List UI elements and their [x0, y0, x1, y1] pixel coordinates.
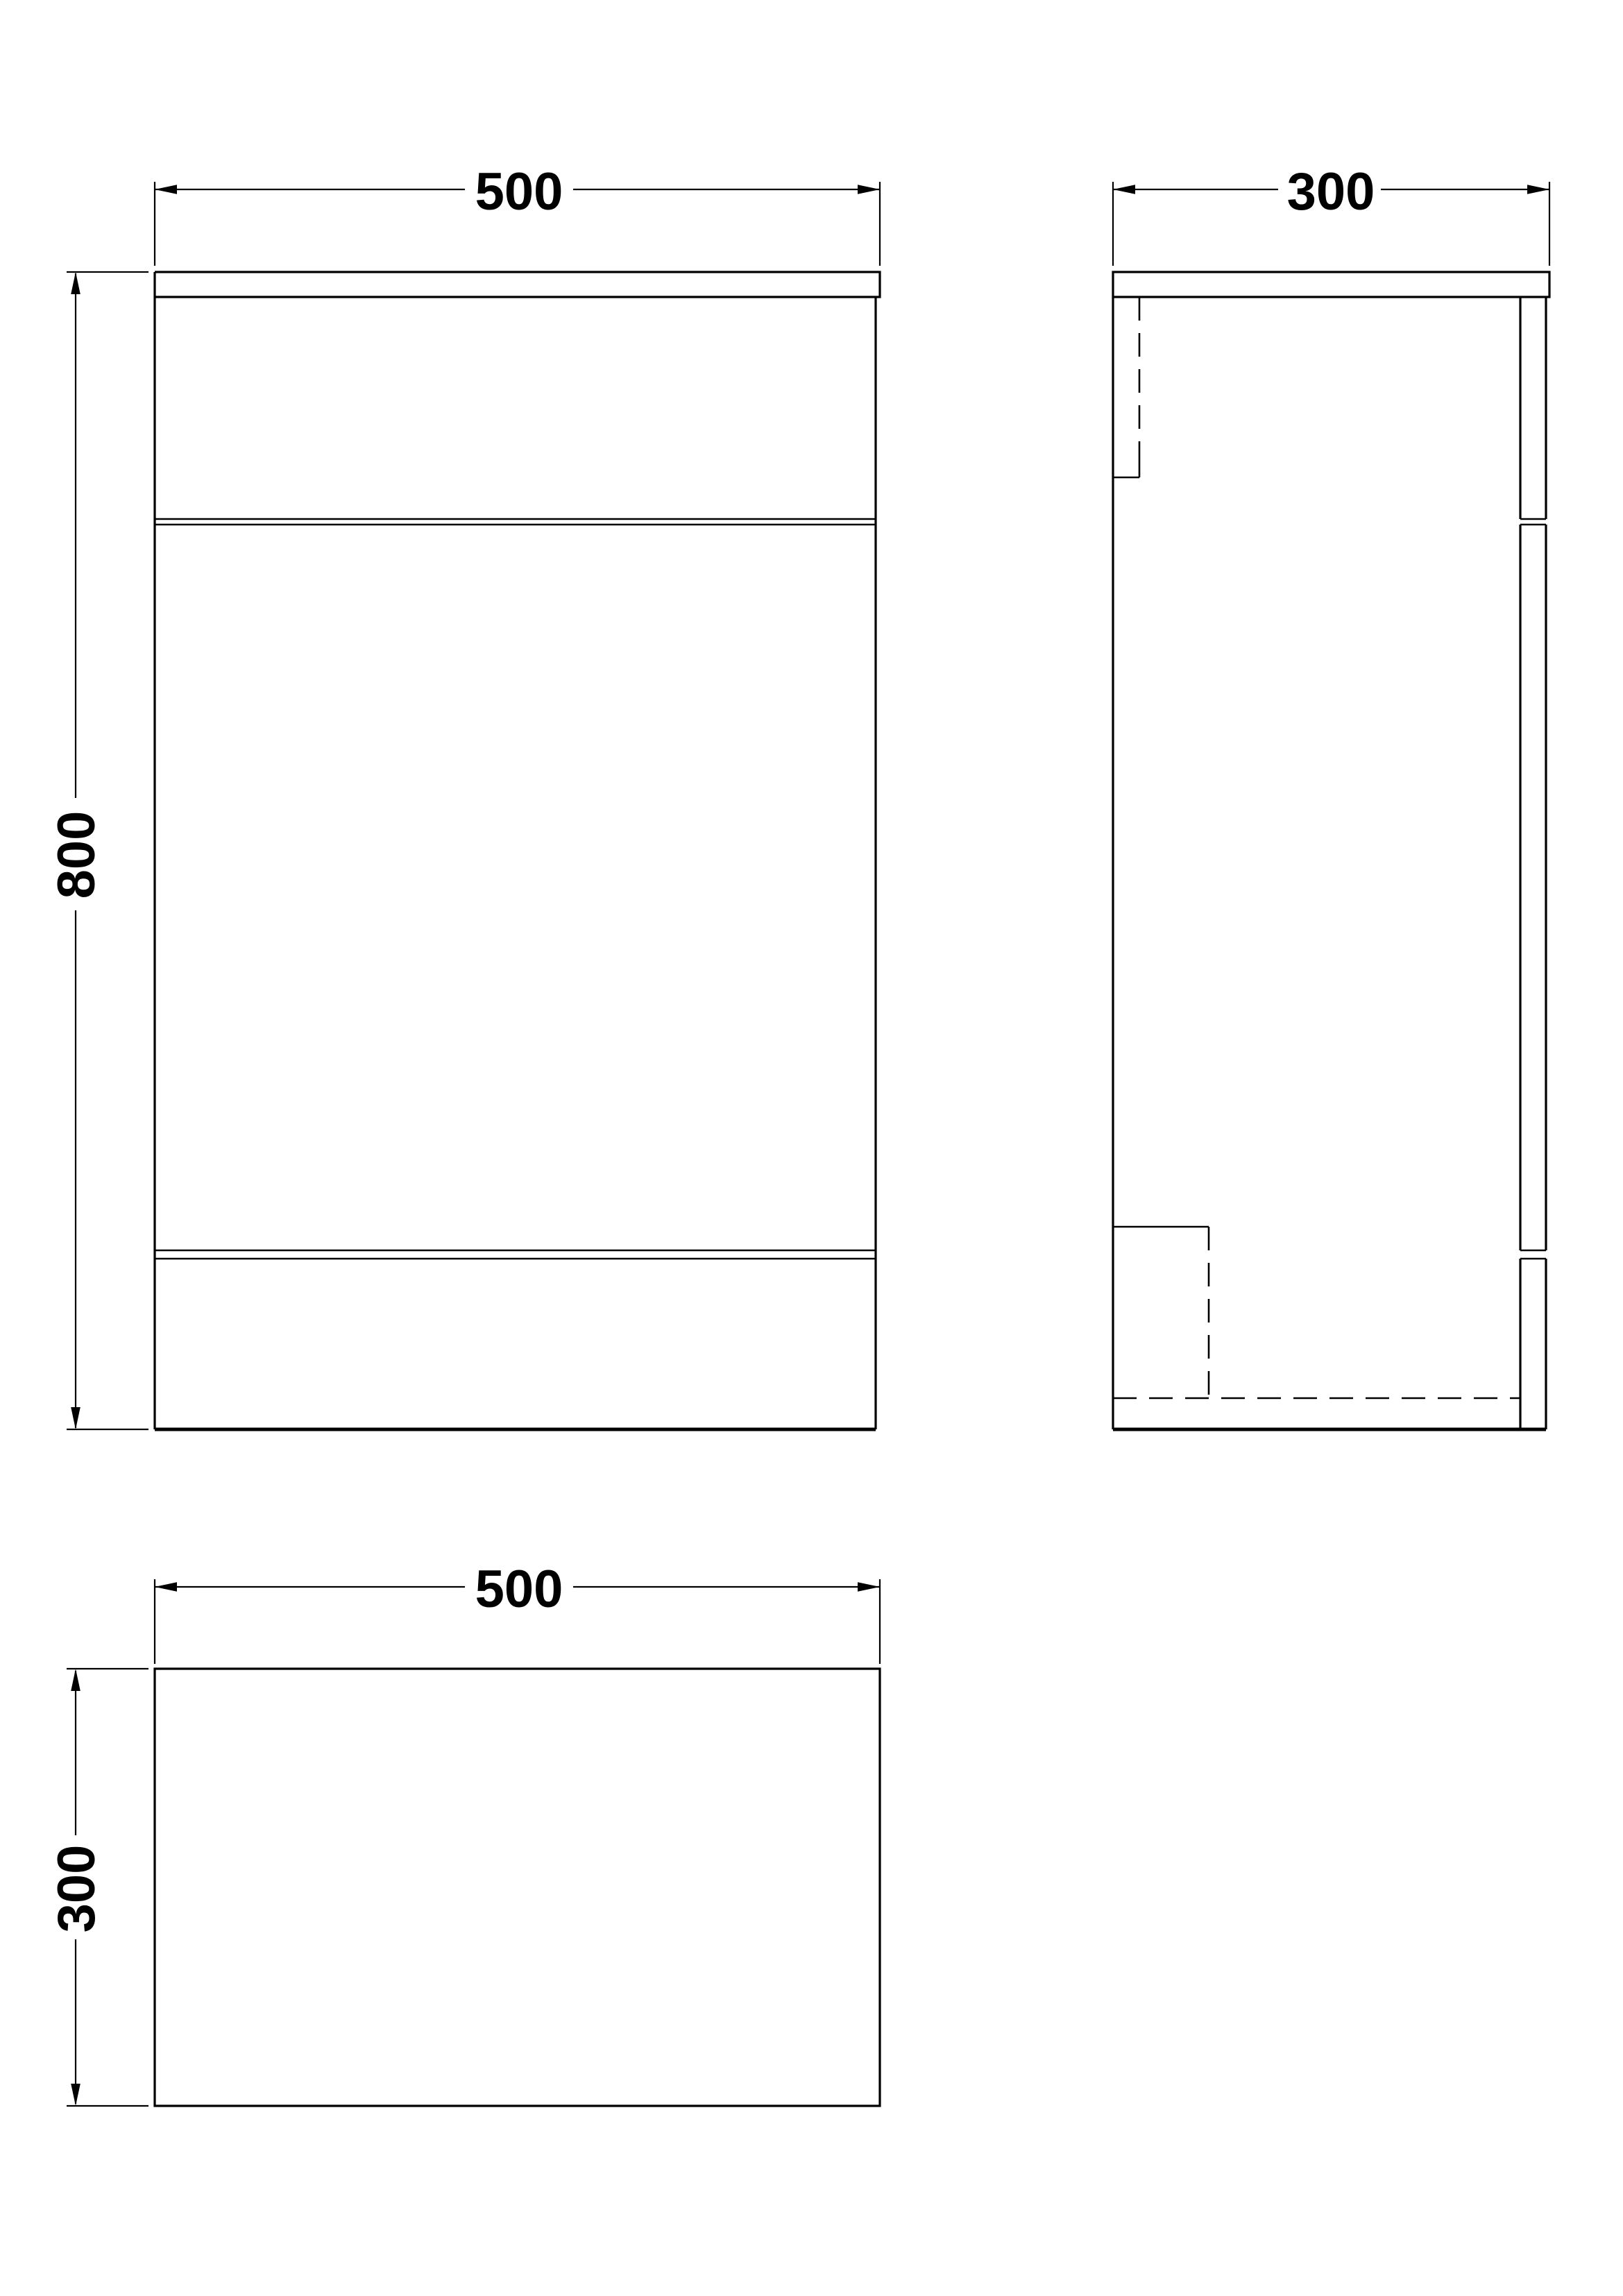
plan-width-label: 500 [475, 1560, 563, 1619]
side-panel-gap-lines [1520, 519, 1546, 1259]
plan-depth-label: 300 [47, 1845, 106, 1933]
drawing-sheet: 500 800 [0, 0, 1623, 2296]
front-width-dimension: 500 [155, 162, 880, 266]
front-height-label: 800 [47, 811, 106, 899]
front-width-label: 500 [475, 162, 563, 221]
arrowhead-left [1113, 185, 1135, 194]
side-countertop-outline [1113, 272, 1549, 297]
side-batten-corner [1113, 464, 1139, 477]
arrowhead-down [71, 2084, 80, 2106]
plan-outline [155, 1669, 880, 2106]
plan-width-dimension: 500 [155, 1560, 880, 1664]
arrowhead-left [155, 185, 177, 194]
plan-view [155, 1669, 880, 2106]
side-elevation-view [1113, 272, 1549, 1429]
arrowhead-right [858, 1582, 880, 1592]
side-depth-dimension: 300 [1113, 162, 1549, 266]
side-depth-label: 300 [1287, 162, 1375, 221]
front-elevation-view [155, 272, 880, 1429]
arrowhead-left [155, 1582, 177, 1592]
plan-depth-dimension: 300 [47, 1669, 148, 2106]
arrowhead-up [71, 1669, 80, 1691]
arrowhead-right [1527, 185, 1549, 194]
front-height-dimension: 800 [47, 272, 148, 1429]
technical-drawing: 500 800 [0, 0, 1623, 2296]
arrowhead-right [858, 185, 880, 194]
front-countertop-outline [155, 272, 880, 297]
arrowhead-down [71, 1407, 80, 1429]
arrowhead-up [71, 272, 80, 294]
